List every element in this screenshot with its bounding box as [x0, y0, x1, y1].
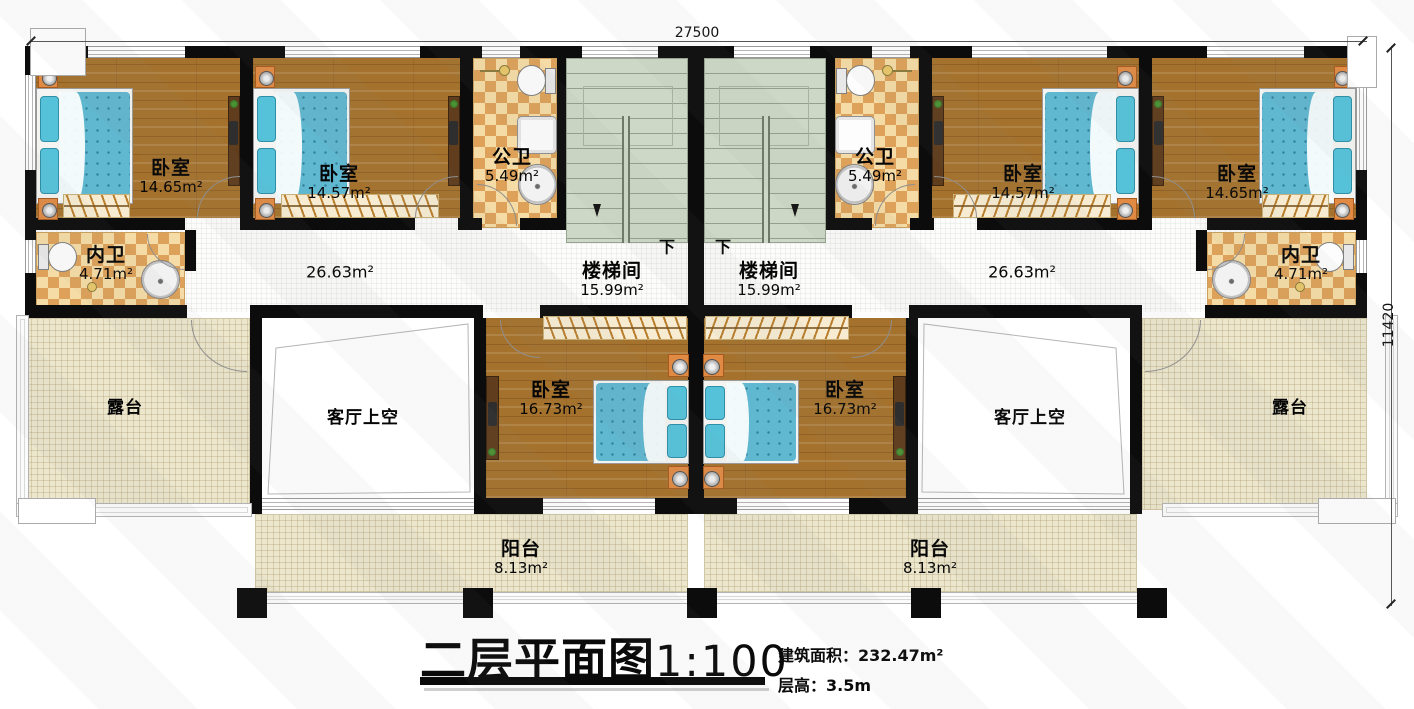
stairs-down-text: 下 — [715, 239, 731, 258]
monitor-icon — [229, 121, 238, 145]
lamp-icon — [704, 359, 720, 375]
wall-terrace-void — [250, 318, 262, 498]
corner-box-bottom-right — [1318, 498, 1396, 524]
pillow — [257, 148, 276, 194]
lamp-icon — [1118, 71, 1133, 86]
wall-bath-stair — [826, 58, 835, 228]
lamp-icon — [1118, 203, 1133, 218]
nightstand — [255, 66, 275, 88]
room-area: 16.73m² — [519, 401, 583, 419]
monitor-icon — [1154, 121, 1163, 145]
room-area: 26.63m² — [306, 264, 374, 283]
room-label-stairwell-right: 楼梯间 15.99m² — [737, 260, 801, 300]
building-area-annotation: 建筑面积：232.47m² — [778, 642, 943, 666]
room-label-terrace-right: 露台 — [1272, 398, 1308, 418]
nightstand — [703, 354, 724, 377]
wall-void-north — [909, 305, 1142, 318]
wall-private-bath-east — [1196, 230, 1207, 271]
pillow — [40, 96, 59, 142]
room-name: 卧室 — [319, 163, 359, 185]
stair-rail — [622, 116, 630, 243]
room-area: 15.99m² — [737, 282, 801, 300]
window-bedroom-a-north — [1207, 46, 1304, 58]
pillar — [1137, 588, 1167, 618]
plant-icon — [230, 100, 238, 108]
bed-sheet — [1090, 92, 1116, 200]
room-label-bedroom-b-right: 卧室 14.57m² — [991, 163, 1055, 203]
nightstand — [1117, 66, 1137, 88]
bed-mattress — [59, 92, 130, 200]
lamp-icon — [672, 471, 688, 487]
wall-void-bedroom-c — [474, 318, 486, 498]
stairs-down-text: 下 — [659, 239, 675, 258]
balcony-floor — [255, 514, 688, 592]
room-label-terrace-left: 露台 — [107, 398, 143, 418]
wall-void-north — [250, 305, 483, 318]
room-label-living-void-right: 客厅上空 — [994, 408, 1066, 428]
nightstand — [703, 466, 724, 489]
wall-stub-balcony-west — [1130, 498, 1142, 514]
window-bedroom-b-north — [972, 46, 1107, 58]
room-name: 公卫 — [855, 146, 895, 168]
room-name: 楼梯间 — [739, 260, 799, 282]
lamp-icon — [1335, 203, 1350, 218]
room-area: 4.71m² — [79, 266, 133, 284]
window-bedroom-c-south — [737, 498, 849, 510]
pillow — [667, 424, 687, 458]
toilet-icon — [517, 65, 546, 96]
room-area: 26.63m² — [988, 264, 1056, 283]
room-label-balcony-right: 阳台 8.13m² — [903, 538, 957, 578]
room-name: 内卫 — [1281, 244, 1321, 266]
wardrobe — [63, 194, 130, 218]
room-label-bedroom-a-left: 卧室 14.65m² — [139, 157, 203, 197]
room-label-living-void-left: 客厅上空 — [327, 408, 399, 428]
floor-height-value: 3.5m — [826, 676, 871, 695]
corridor-area-right: 26.63m² — [988, 264, 1056, 283]
room-name: 内卫 — [86, 244, 126, 266]
dimension-right-label: 11420 — [1381, 303, 1397, 348]
room-name: 楼梯间 — [582, 260, 642, 282]
toilet-icon — [846, 65, 875, 96]
window-stair-north — [582, 46, 658, 58]
floor-height-annotation: 层高：3.5m — [778, 672, 871, 696]
pillow — [705, 386, 725, 420]
terrace-railing-west — [16, 315, 29, 515]
room-name: 卧室 — [531, 379, 571, 401]
room-label-balcony-left: 阳台 8.13m² — [494, 538, 548, 578]
wardrobe — [1262, 194, 1329, 218]
window-void-south — [262, 498, 474, 510]
room-name: 卧室 — [1003, 163, 1043, 185]
room-name: 阳台 — [501, 538, 541, 560]
room-name: 公卫 — [492, 146, 532, 168]
wall-bedroom-a-b — [240, 58, 253, 218]
stairs-down-right: 下 — [715, 239, 731, 258]
corner-box-bottom-left — [18, 498, 96, 524]
room-name: 卧室 — [151, 157, 191, 179]
room-label-private-bath-left: 内卫 4.71m² — [79, 244, 133, 284]
room-name: 阳台 — [910, 538, 950, 560]
wall-south-bedroom-a — [36, 218, 185, 230]
unit-graphics-left — [25, 46, 697, 618]
room-label-private-bath-right: 内卫 4.71m² — [1274, 244, 1328, 284]
pillow — [1333, 148, 1352, 194]
wall-bath-stair — [557, 58, 566, 228]
window-stair-north — [734, 46, 810, 58]
stair-direction-arrow — [791, 204, 799, 217]
wall-bedroom-a-b — [1139, 58, 1152, 218]
wall-stub-bedroom-c-west — [849, 498, 918, 514]
wall-stub-bedroom-c-west — [474, 498, 543, 514]
room-area: 15.99m² — [580, 282, 644, 300]
room-label-public-bath-left: 公卫 5.49m² — [485, 146, 539, 186]
pillow — [40, 148, 59, 194]
window-bedroom-b-north — [285, 46, 420, 58]
plant-icon — [1154, 100, 1162, 108]
lamp-icon — [42, 203, 57, 218]
unit-graphics-right — [695, 46, 1367, 618]
stair-direction-arrow — [593, 204, 601, 217]
toilet-tank-icon — [545, 68, 556, 94]
nightstand — [668, 466, 689, 489]
pillow — [1333, 96, 1352, 142]
room-name: 露台 — [1272, 398, 1308, 418]
room-label-bedroom-c-left: 卧室 16.73m² — [519, 379, 583, 419]
plant-icon — [450, 100, 458, 108]
toilet-icon — [48, 242, 77, 272]
wall-terrace-void — [1130, 318, 1142, 498]
dimension-line-top — [30, 41, 1367, 42]
nightstand — [668, 354, 689, 377]
dimension-top-label: 27500 — [675, 25, 720, 41]
building-area-value: 232.47m² — [858, 646, 943, 665]
window-bath-north — [872, 46, 910, 58]
lamp-icon — [704, 471, 720, 487]
pillow — [705, 424, 725, 458]
toilet-tank-icon — [1343, 244, 1354, 270]
window-bedroom-c-south — [543, 498, 655, 510]
wall-stub-balcony-center — [695, 498, 737, 514]
lamp-icon — [259, 71, 274, 86]
room-area: 5.49m² — [485, 168, 539, 186]
floor-height-label: 层高： — [778, 676, 826, 695]
room-area: 8.13m² — [494, 560, 548, 578]
plant-icon — [488, 448, 496, 456]
room-area: 8.13m² — [903, 560, 957, 578]
pillow — [1116, 148, 1135, 194]
bed-mattress — [1045, 92, 1116, 200]
room-name: 客厅上空 — [327, 408, 399, 428]
room-area: 14.65m² — [139, 179, 203, 197]
room-name: 露台 — [107, 398, 143, 418]
wall-void-bedroom-c — [906, 318, 918, 498]
plant-icon — [934, 100, 942, 108]
towel-hook-icon — [882, 65, 893, 76]
pillar — [911, 588, 941, 618]
nightstand — [1334, 198, 1354, 220]
bed-sheet — [1307, 92, 1333, 200]
plant-icon — [896, 448, 904, 456]
wall-bedroom-b-bath — [460, 58, 473, 218]
room-name: 卧室 — [1217, 163, 1257, 185]
towel-hook-icon — [499, 65, 510, 76]
pillar — [237, 588, 267, 618]
title-underline-shadow — [424, 688, 769, 691]
room-label-stairwell-left: 楼梯间 15.99m² — [580, 260, 644, 300]
wardrobe — [543, 316, 687, 340]
pillar — [463, 588, 493, 618]
nightstand — [255, 198, 275, 220]
pillar — [687, 588, 717, 618]
bed-mattress — [727, 383, 796, 461]
stairs-down-left: 下 — [659, 239, 675, 258]
monitor-icon — [895, 402, 904, 426]
bed-sheet — [276, 92, 302, 200]
stair-rail — [762, 116, 770, 243]
floor-plan-canvas: 27500 11420 卧室 14.65m² 卧室 14.57m² 公卫 5.4… — [0, 0, 1414, 709]
room-label-public-bath-right: 公卫 5.49m² — [848, 146, 902, 186]
room-label-bedroom-c-right: 卧室 16.73m² — [813, 379, 877, 419]
lamp-icon — [259, 203, 274, 218]
window-void-south — [918, 498, 1130, 510]
pillow — [1116, 96, 1135, 142]
monitor-icon — [449, 121, 458, 145]
wall-private-bath-east — [185, 230, 196, 271]
window-bedroom-a-west — [1356, 75, 1367, 170]
bed-sheet — [59, 92, 85, 200]
wardrobe — [705, 316, 849, 340]
bed-mattress — [596, 383, 665, 461]
title-underline — [420, 677, 765, 685]
window-bath-north — [482, 46, 520, 58]
towel-bar-icon — [890, 70, 912, 72]
nightstand — [38, 198, 58, 220]
lamp-icon — [672, 359, 688, 375]
wall-south-bath-right — [520, 218, 566, 230]
corner-box-top-left — [30, 28, 86, 76]
room-area: 14.57m² — [991, 185, 1055, 203]
bed-mattress — [1262, 92, 1333, 200]
window-bedroom-a-west — [25, 75, 36, 170]
room-area: 14.57m² — [307, 185, 371, 203]
wall-terrace-north — [25, 305, 187, 318]
nightstand — [1117, 198, 1137, 220]
wall-bedroom-b-bath — [919, 58, 932, 218]
room-name: 卧室 — [825, 379, 865, 401]
corner-box-top-right — [1347, 36, 1377, 88]
pillow — [667, 386, 687, 420]
room-area: 5.49m² — [848, 168, 902, 186]
wall-stub-balcony-center — [655, 498, 697, 514]
building-area-label: 建筑面积： — [778, 646, 858, 665]
monitor-icon — [488, 402, 497, 426]
room-area: 4.71m² — [1274, 266, 1328, 284]
bed-sheet — [727, 383, 749, 461]
room-area: 16.73m² — [813, 401, 877, 419]
room-label-bedroom-a-right: 卧室 14.65m² — [1205, 163, 1269, 203]
corridor-area-left: 26.63m² — [306, 264, 374, 283]
room-label-bedroom-b-left: 卧室 14.57m² — [307, 163, 371, 203]
window-bedroom-a-north — [88, 46, 185, 58]
bed-sheet — [643, 383, 665, 461]
wall-terrace-north — [1205, 305, 1367, 318]
pillow — [257, 96, 276, 142]
window-private-bath-west — [25, 240, 36, 273]
room-name: 客厅上空 — [994, 408, 1066, 428]
monitor-icon — [934, 121, 943, 145]
room-area: 14.65m² — [1205, 185, 1269, 203]
wall-south-bath-right — [826, 218, 872, 230]
window-private-bath-west — [1356, 240, 1367, 273]
